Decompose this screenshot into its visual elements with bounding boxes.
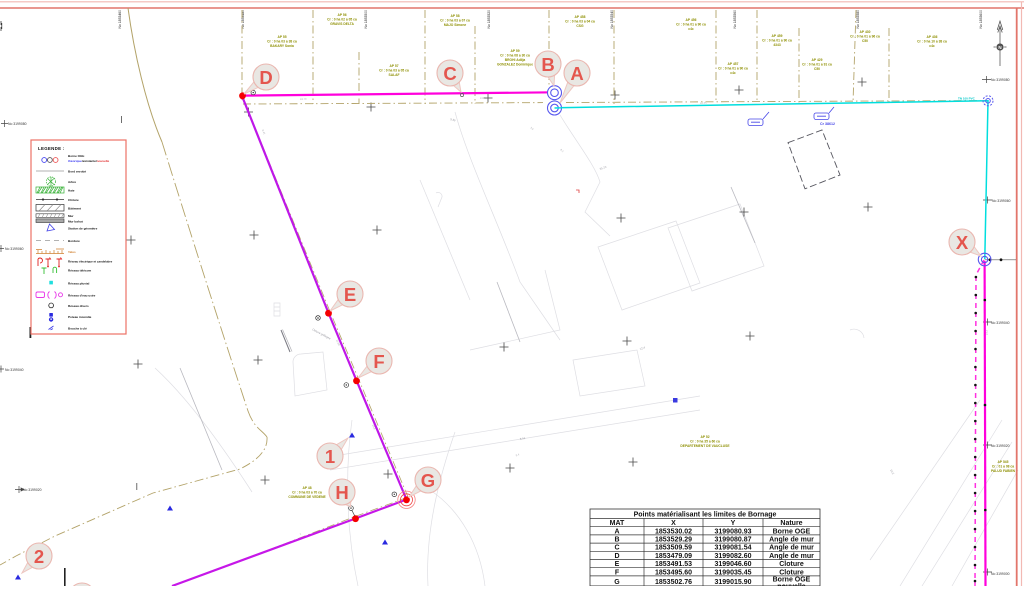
svg-text:Y: Y (731, 520, 736, 527)
svg-text:1: 1 (325, 446, 335, 467)
svg-text:Mur: Mur (68, 214, 74, 218)
svg-text:H: H (335, 482, 348, 503)
svg-text:AP 456: AP 456 (686, 18, 697, 22)
svg-text:Cr : 0 ha 35 a 60 ca: Cr : 0 ha 35 a 60 ca (690, 440, 720, 444)
svg-text:AP 56: AP 56 (337, 13, 346, 17)
svg-text:Cloture: Cloture (779, 561, 804, 568)
svg-text:No 1853520: No 1853520 (487, 10, 491, 29)
svg-text:B: B (614, 537, 619, 544)
svg-text:Station de géomètre: Station de géomètre (68, 227, 98, 231)
svg-text:3199035.45: 3199035.45 (715, 569, 752, 576)
svg-text:AP 459: AP 459 (772, 34, 783, 38)
svg-text:A: A (570, 63, 583, 84)
svg-text:Clôture: Clôture (68, 198, 79, 202)
svg-text:BROHI Adilja: BROHI Adilja (505, 58, 526, 62)
svg-text:Cloture: Cloture (779, 569, 804, 576)
svg-text:G: G (614, 579, 620, 586)
svg-text:1853495.60: 1853495.60 (655, 569, 692, 576)
svg-text:Cr : 0 ha 03 a 04 ca: Cr : 0 ha 03 a 04 ca (565, 20, 595, 24)
svg-text:E: E (344, 284, 356, 305)
svg-text:c4c: c4c (730, 71, 736, 75)
svg-text:C: C (443, 63, 456, 84)
svg-text:Réseau d'eau usée: Réseau d'eau usée (68, 294, 96, 298)
svg-text:C50: C50 (814, 67, 820, 71)
svg-text:Cr 38612: Cr 38612 (820, 122, 835, 126)
svg-text:3199080.87: 3199080.87 (715, 537, 752, 544)
svg-text:Bordure: Bordure (68, 239, 80, 243)
svg-text:Réseau télécom: Réseau télécom (68, 269, 91, 273)
svg-text:c4c: c4c (688, 27, 694, 31)
svg-text:théorique/existante/nouvelle: théorique/existante/nouvelle (68, 159, 109, 163)
svg-text:AP 52: AP 52 (700, 435, 709, 439)
svg-text:AP 457: AP 457 (728, 62, 739, 66)
svg-text:Haie: Haie (68, 189, 75, 193)
svg-text:Angle de mur: Angle de mur (769, 537, 814, 544)
svg-text:Cr : 0 ha 01 a 90 ca: Cr : 0 ha 01 a 90 ca (718, 67, 748, 71)
svg-text:No 3199080: No 3199080 (991, 78, 1010, 82)
svg-text:G: G (421, 470, 435, 491)
svg-text:Bord enrobé: Bord enrobé (68, 170, 86, 174)
svg-text:X: X (671, 520, 676, 527)
svg-text:1853509.59: 1853509.59 (655, 545, 692, 552)
svg-text:N: N (998, 45, 1001, 50)
svg-text:Angle de mur: Angle de mur (769, 553, 814, 560)
svg-text:E: E (615, 561, 620, 568)
svg-text:No 3199020: No 3199020 (23, 488, 42, 492)
svg-text:2: 2 (34, 546, 44, 567)
svg-text:AP 59: AP 59 (510, 49, 519, 53)
svg-text:BAKARY Sonia: BAKARY Sonia (270, 44, 294, 48)
svg-text:24.70: 24.70 (300, 97, 307, 101)
svg-text:AP 430: AP 430 (860, 30, 871, 34)
svg-text:X: X (956, 232, 969, 253)
svg-text:1853479.09: 1853479.09 (655, 553, 692, 560)
svg-text:Talus: Talus (68, 250, 76, 254)
svg-text:Réseau divers: Réseau divers (68, 304, 89, 308)
svg-text:GRAVIS DELTA: GRAVIS DELTA (330, 22, 354, 26)
svg-text:Nature: Nature (780, 520, 802, 527)
svg-text:No 3199020: No 3199020 (991, 444, 1010, 448)
svg-text:B: B (541, 54, 554, 75)
svg-text:SALAF: SALAF (389, 73, 400, 77)
svg-text:Cr : 0 ha 01 a 90 ca: Cr : 0 ha 01 a 90 ca (762, 39, 792, 43)
svg-text:No 1853560: No 1853560 (733, 10, 737, 29)
svg-text:No 3199080: No 3199080 (8, 122, 27, 126)
svg-text:AP 55: AP 55 (277, 35, 286, 39)
svg-text:No 3199060: No 3199060 (992, 199, 1011, 203)
svg-text:Cr : 0 ha 01 a 91 ca: Cr : 0 ha 01 a 91 ca (802, 63, 832, 67)
svg-text:3199082.60: 3199082.60 (715, 553, 752, 560)
svg-text:Réseau pluvial: Réseau pluvial (68, 282, 89, 286)
svg-text:A: A (614, 528, 619, 535)
svg-text:Cr : 0 ha 10 a 38 ca: Cr : 0 ha 10 a 38 ca (917, 40, 947, 44)
svg-text:3199080.93: 3199080.93 (715, 528, 752, 535)
svg-text:CSG: CSG (576, 24, 584, 28)
svg-text:F: F (373, 351, 384, 372)
svg-text:C50: C50 (862, 39, 868, 43)
svg-text:No 3199060: No 3199060 (5, 247, 24, 251)
svg-text:1853491.53: 1853491.53 (655, 561, 692, 568)
svg-text:1853530.02: 1853530.02 (655, 528, 692, 535)
svg-text:AP 545: AP 545 (998, 460, 1009, 464)
svg-text:AP 436: AP 436 (927, 35, 938, 39)
svg-text:Bâtiment: Bâtiment (68, 207, 81, 211)
svg-text:No 1853580: No 1853580 (856, 10, 860, 29)
svg-text:COMMUNE DE VEDENE: COMMUNE DE VEDENE (288, 495, 326, 499)
svg-text:AP 429: AP 429 (812, 58, 823, 62)
svg-text:Arbre: Arbre (68, 180, 76, 184)
svg-text:AP 57: AP 57 (389, 64, 398, 68)
svg-text:Cr : 0 ha 03 a 07 ca: Cr : 0 ha 03 a 07 ca (440, 19, 470, 23)
svg-text:DEPARTEMENT DE VAUCLUSE: DEPARTEMENT DE VAUCLUSE (680, 444, 730, 448)
svg-text:3199046.60: 3199046.60 (715, 561, 752, 568)
svg-text:MAT: MAT (610, 520, 625, 527)
svg-text:Cr : 0 ha 03 a 70 ca: Cr : 0 ha 03 a 70 ca (292, 491, 322, 495)
svg-text:No 1853500: No 1853500 (364, 10, 368, 29)
svg-text:F: F (615, 569, 620, 576)
svg-text:No 3199000: No 3199000 (991, 572, 1010, 576)
svg-text:Cr : 0 ha 01 a 90 ca: Cr : 0 ha 01 a 90 ca (676, 23, 706, 27)
svg-text:AP 48: AP 48 (302, 486, 311, 490)
svg-text:No 1853600: No 1853600 (979, 10, 983, 29)
svg-text:1853529.29: 1853529.29 (655, 537, 692, 544)
svg-text:3199015.90: 3199015.90 (715, 579, 752, 586)
svg-text:4343: 4343 (773, 43, 781, 47)
svg-text:c4c: c4c (929, 44, 935, 48)
svg-text:No 1853540: No 1853540 (610, 10, 614, 29)
svg-text:Cr : 0 ha 02 a 05 ca: Cr : 0 ha 02 a 05 ca (327, 18, 357, 22)
svg-text:19.71: 19.71 (480, 96, 487, 100)
svg-text:Réseau électrique et candelabr: Réseau électrique et candelabre (68, 260, 113, 264)
svg-text:LEGENDE :: LEGENDE : (38, 146, 65, 151)
svg-text:Cr : 0 ha 03 a 05 ca: Cr : 0 ha 03 a 05 ca (379, 69, 409, 73)
svg-text:Cr : 0 ha 01 a 96 ca: Cr : 0 ha 01 a 96 ca (850, 35, 880, 39)
svg-text:No 3199040: No 3199040 (5, 368, 24, 372)
svg-text:MAJO Simone: MAJO Simone (444, 23, 467, 27)
svg-text:Borne OGE: Borne OGE (773, 577, 811, 584)
svg-text:D: D (259, 67, 272, 88)
svg-text:Angle de mur: Angle de mur (769, 545, 814, 552)
svg-text:Cr : 01 a 08 ca: Cr : 01 a 08 ca (992, 465, 1014, 469)
svg-text:AP 58: AP 58 (450, 14, 459, 18)
svg-text:PALUD FABIEN: PALUD FABIEN (991, 469, 1016, 473)
svg-text:Poteau incendie: Poteau incendie (68, 315, 92, 319)
svg-text:Cr : 0 ha 03 a 38 ca: Cr : 0 ha 03 a 38 ca (267, 40, 297, 44)
svg-text:Cr : 0 ha 08 a 30 ca: Cr : 0 ha 08 a 30 ca (500, 54, 530, 58)
svg-text:C: C (614, 545, 619, 552)
svg-text:Borne OGE: Borne OGE (68, 154, 84, 158)
svg-text:Points matérialisant les limit: Points matérialisant les limites de Born… (634, 512, 777, 519)
svg-text:D: D (614, 553, 619, 560)
svg-text:AP 458: AP 458 (575, 15, 586, 19)
svg-text:TN 100 PVC: TN 100 PVC (958, 97, 976, 101)
svg-text:Mur bahut: Mur bahut (68, 219, 83, 223)
svg-text:1853502.76: 1853502.76 (655, 579, 692, 586)
svg-text:No 3199040: No 3199040 (991, 321, 1010, 325)
svg-text:GONZALEZ Dominique: GONZALEZ Dominique (497, 63, 533, 67)
svg-text:Borne OGE: Borne OGE (773, 528, 811, 535)
svg-text:3199081.54: 3199081.54 (715, 545, 752, 552)
svg-text:Bouche à clé: Bouche à clé (68, 327, 87, 331)
svg-text:No 1853460: No 1853460 (118, 10, 122, 29)
